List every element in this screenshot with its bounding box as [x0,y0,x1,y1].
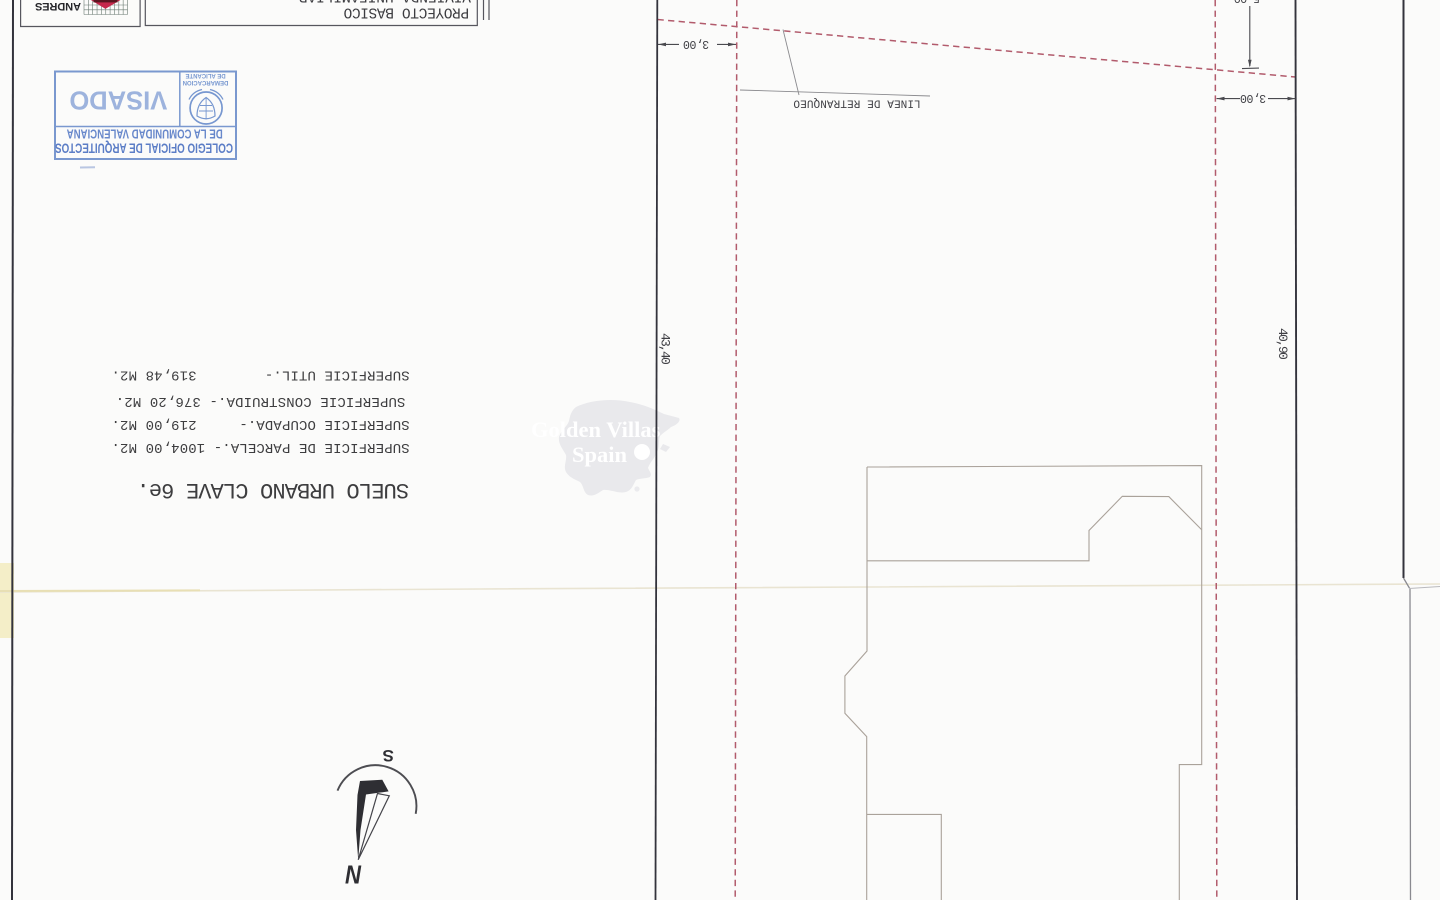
svg-text:SUPERFICIE OCUPADA.- 219,0: SUPERFICIE OCUPADA.- 219,00 M2. [111,416,409,432]
svg-text:S: S [383,746,394,765]
svg-text:VIVIENDA UNIFAMILIAR: VIVIENDA UNIFAMILIAR [299,0,471,4]
svg-text:Spain: Spain [572,442,628,467]
svg-text:Golden Villas: Golden Villas [531,417,661,442]
svg-text:DEMARCACION: DEMARCACION [183,79,229,85]
svg-text:SUPERFICIE CONSTRUIDA.- 376,20: SUPERFICIE CONSTRUIDA.- 376,20 M2. [116,393,406,409]
svg-text:3,00: 3,00 [1240,91,1266,104]
svg-text:40,90: 40,90 [1275,328,1290,359]
svg-text:COLEGIO OFICIAL DE ARQUITECTOS: COLEGIO OFICIAL DE ARQUITECTOS [55,141,233,156]
svg-text:DE LA COMUNIDAD VALENCIANA: DE LA COMUNIDAD VALENCIANA [67,127,223,141]
svg-text:SUPERFICIE UTIL.- 319,4: SUPERFICIE UTIL.- 319,48 M2. [111,366,409,382]
svg-text:VISADO: VISADO [69,86,167,116]
svg-text:LINEA DE RETRANQUEO: LINEA DE RETRANQUEO [793,97,921,109]
svg-text:5,00: 5,00 [1234,0,1260,4]
svg-text:43,40: 43,40 [658,333,673,364]
svg-text:3,00: 3,00 [683,37,709,50]
svg-text:DE ALICANTE: DE ALICANTE [185,72,225,78]
svg-text:PROYECTO BASICO: PROYECTO BASICO [344,3,469,19]
svg-text:N: N [345,860,362,890]
svg-text:SUELO URBANO CLAVE 6e.: SUELO URBANO CLAVE 6e. [137,477,409,502]
svg-text:SUPERFICIE DE PARCELA.- 1004,0: SUPERFICIE DE PARCELA.- 1004,00 M2. [111,439,409,455]
svg-text:ANDRES: ANDRES [35,0,81,12]
